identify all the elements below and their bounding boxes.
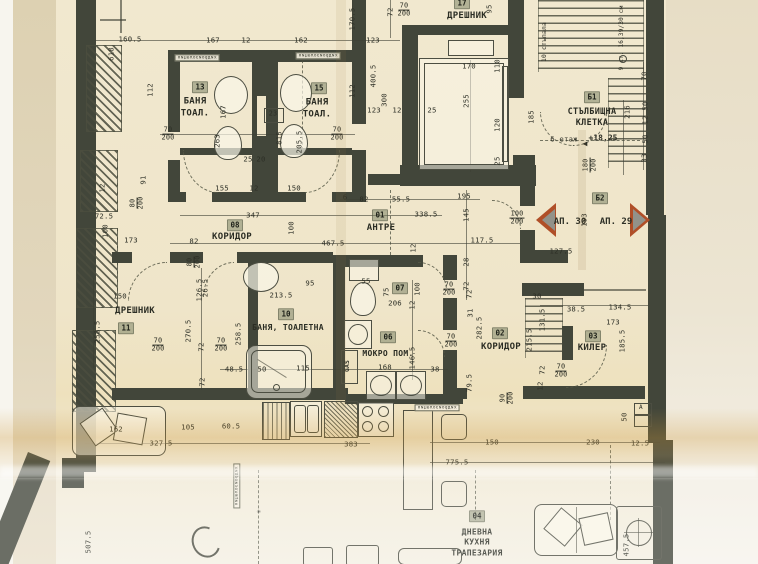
waterproofing-strip-label: хидроизолация (295, 52, 340, 59)
waterproofing-strip-label: хидроизолация (233, 463, 240, 508)
floor-plan-photo: А 13 БАНЯ ТОАЛ. 15 БАНЯ ТОАЛ. 17 ДРЕШНИК… (0, 0, 758, 564)
strips-layer: хидроизолацияхидроизолацияхидроизолациях… (0, 0, 758, 564)
waterproofing-strip-label: хидроизолация (414, 404, 459, 411)
waterproofing-strip-label: хидроизолация (174, 54, 219, 61)
